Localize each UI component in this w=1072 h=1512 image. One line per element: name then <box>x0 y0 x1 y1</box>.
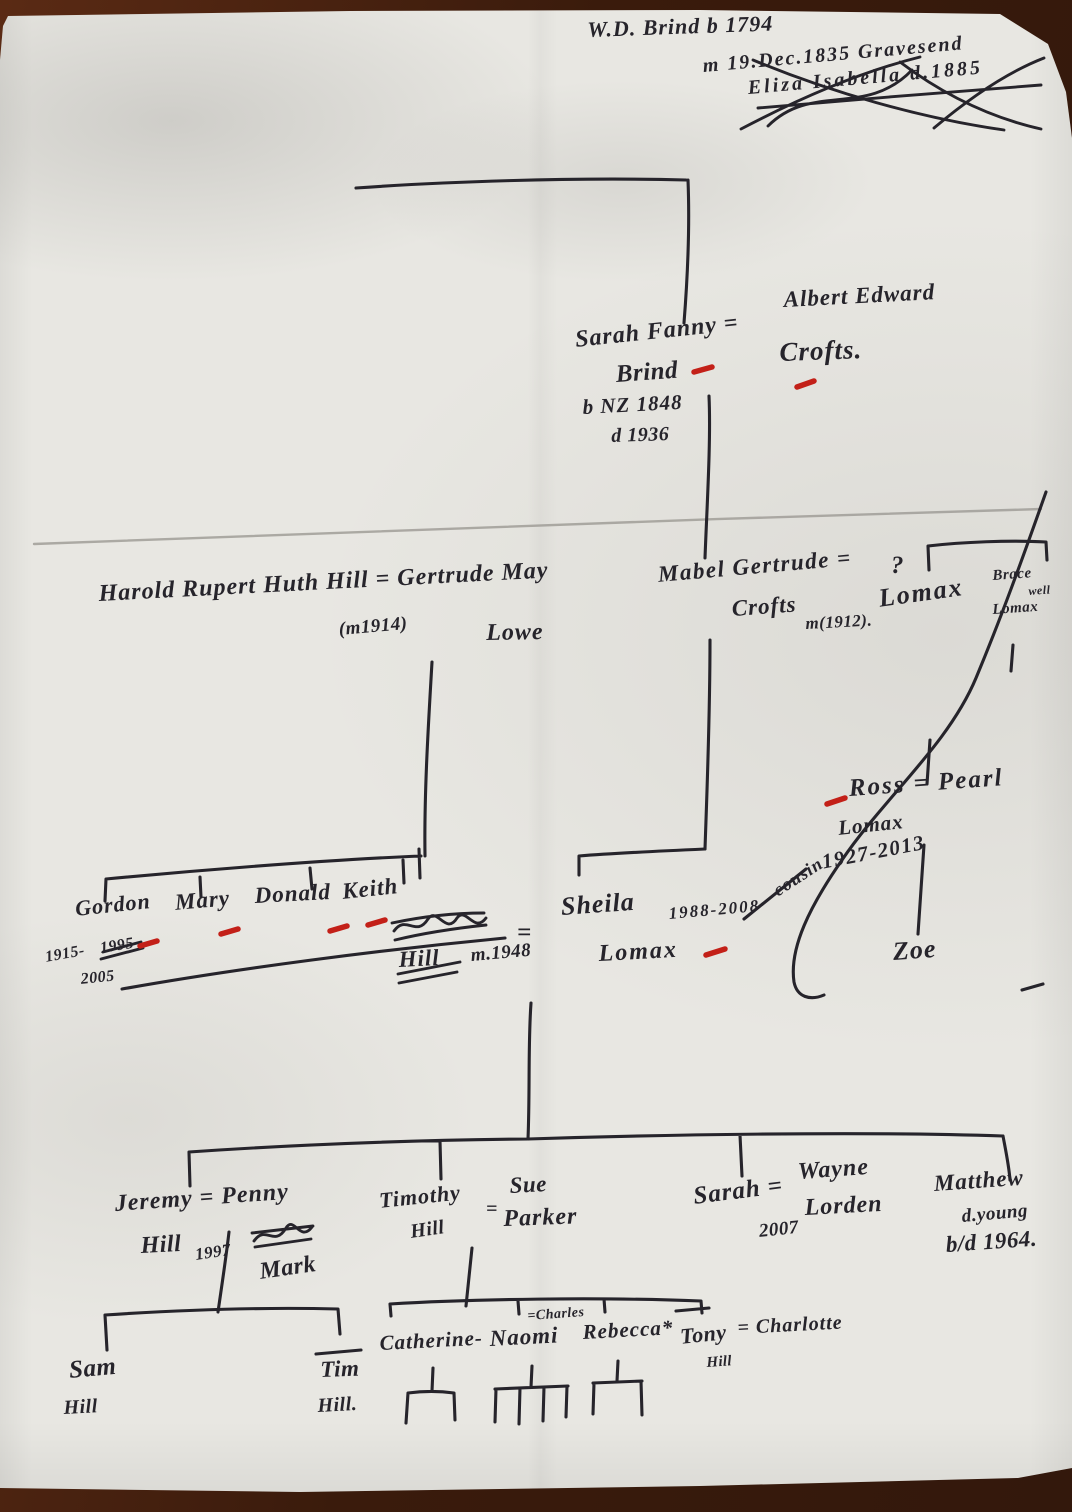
label-parker: Parker <box>503 1204 578 1232</box>
label-died-young: d.young <box>961 1201 1029 1227</box>
label-gordon-born: 1915- <box>44 943 86 966</box>
label-jeremy-penny: Jeremy = Penny <box>114 1180 290 1217</box>
label-crofts: Crofts. <box>779 335 863 366</box>
label-donald: Donald <box>254 880 331 908</box>
label-wayne: Wayne <box>797 1155 870 1185</box>
label-hill-tony: Hill <box>706 1354 732 1371</box>
label-sheila: Sheila <box>560 888 636 920</box>
label-year-1997: 1997 <box>194 1241 232 1264</box>
label-naomi: Naomi <box>489 1323 559 1351</box>
label-sarah-fanny: Sarah Fanny = <box>574 311 740 353</box>
label-lorden: Lorden <box>804 1192 883 1221</box>
label-hill-crossed: Hill <box>398 946 440 972</box>
label-mark: Mark <box>258 1252 318 1285</box>
label-ross-dates: 1927-2013 <box>820 831 927 873</box>
label-born-nz: b NZ 1848 <box>582 391 683 418</box>
label-sue: Sue <box>509 1172 548 1198</box>
label-hill-jeremy: Hill <box>140 1232 182 1259</box>
label-equals-keith-sheila: = <box>517 920 531 946</box>
label-charles: =Charles <box>527 1306 585 1325</box>
label-equals-timothy-sue: = <box>486 1199 497 1220</box>
label-hill-tim: Hill. <box>317 1394 358 1417</box>
label-zoe: Zoe <box>892 935 937 965</box>
label-crofts-2: Crofts <box>731 592 797 621</box>
handwriting-labels: W.D. Brind b 1794m 19.Dec.1835 Gravesend… <box>0 0 1072 1512</box>
label-sarah-2: Sarah = <box>692 1173 785 1210</box>
label-bd-1964: b/d 1964. <box>945 1227 1038 1257</box>
label-matthew: Matthew <box>933 1166 1025 1196</box>
label-catherine: Catherine- <box>379 1327 483 1354</box>
label-rebecca: Rebecca* <box>582 1316 674 1343</box>
label-ross-pearl: Ross = Pearl <box>848 765 1004 802</box>
label-albert-edward: Albert Edward <box>783 280 936 312</box>
photo-of-family-tree: W.D. Brind b 1794m 19.Dec.1835 Gravesend… <box>0 0 1072 1512</box>
label-married-1914: (m1914) <box>338 614 408 640</box>
label-tony: Tony <box>679 1320 728 1348</box>
label-hill-timothy: Hill <box>409 1217 446 1243</box>
label-unknown-spouse: ? <box>891 553 904 579</box>
label-year-2007: 2007 <box>758 1218 800 1242</box>
label-lowe: Lowe <box>486 620 544 646</box>
label-lomax-sheila: Lomax <box>598 938 679 967</box>
label-timothy: Timothy <box>378 1180 462 1212</box>
label-gordon-year-crossed: 1995 <box>99 936 135 958</box>
label-gordon: Gordon <box>74 889 152 920</box>
label-married-1912: m(1912). <box>805 612 873 633</box>
label-mary: Mary <box>174 886 231 915</box>
label-died-1936: d 1936 <box>611 424 670 447</box>
label-hill-sam: Hill <box>63 1396 98 1419</box>
label-sam: Sam <box>68 1354 117 1384</box>
label-wd-brind: W.D. Brind b 1794 <box>587 12 774 42</box>
label-gordon-died: 2005 <box>80 968 116 988</box>
paper-sheet: W.D. Brind b 1794m 19.Dec.1835 Gravesend… <box>0 0 1072 1512</box>
label-bracewell-lomax: Lomax <box>992 600 1039 619</box>
label-bracewell-2: well <box>1028 583 1051 597</box>
label-tim: Tim <box>320 1357 360 1382</box>
label-mabel-gertrude: Mabel Gertrude = <box>657 546 853 587</box>
label-charlotte: = Charlotte <box>737 1312 843 1338</box>
label-harold-gertrude: Harold Rupert Huth Hill = Gertrude May <box>98 558 549 607</box>
label-bracewell-1: Brace <box>992 566 1032 584</box>
label-keith: Keith <box>341 874 399 904</box>
label-brind: Brind <box>615 358 679 389</box>
label-sheila-dates: 1988-2008 <box>668 897 761 923</box>
label-cousin-note: cousin <box>770 854 826 900</box>
